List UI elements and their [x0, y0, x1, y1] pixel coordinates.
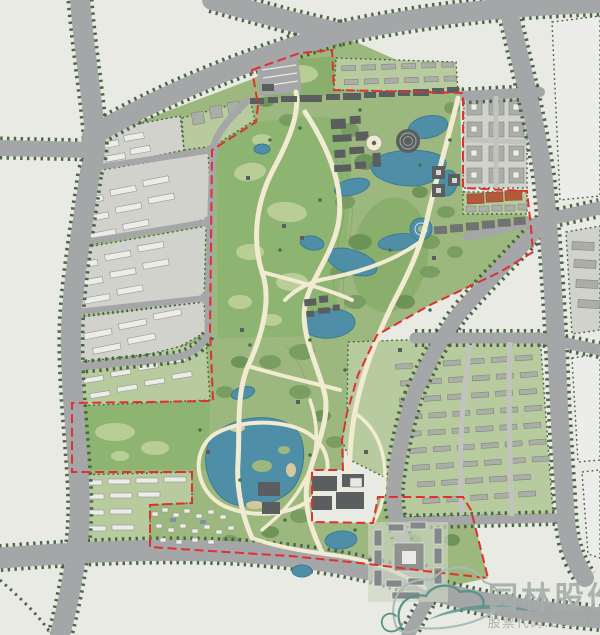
road-west-arm: [0, 148, 90, 150]
block-north-green: [334, 58, 458, 92]
masterplan-screenshot: 园林股份 股票代码:605303: [0, 0, 600, 635]
company-name: 园林股份: [488, 581, 600, 616]
lane-se-2: [509, 342, 512, 516]
amphitheater: [396, 129, 420, 153]
block-ne-empty: [552, 16, 600, 200]
circular-plaza: [366, 135, 382, 151]
lake-south-small: [292, 565, 312, 577]
road-se-south: [396, 518, 556, 522]
roundabout-2: [203, 216, 215, 228]
stock-code: 股票代码:605303: [488, 615, 600, 630]
formal-campus: [368, 522, 448, 602]
lane-ne-2: [464, 140, 527, 142]
masterplan-map: 园林股份 股票代码:605303: [0, 0, 600, 635]
pond-nw: [254, 144, 270, 154]
road-ne-connector: [462, 92, 540, 96]
west-field: [74, 402, 210, 470]
